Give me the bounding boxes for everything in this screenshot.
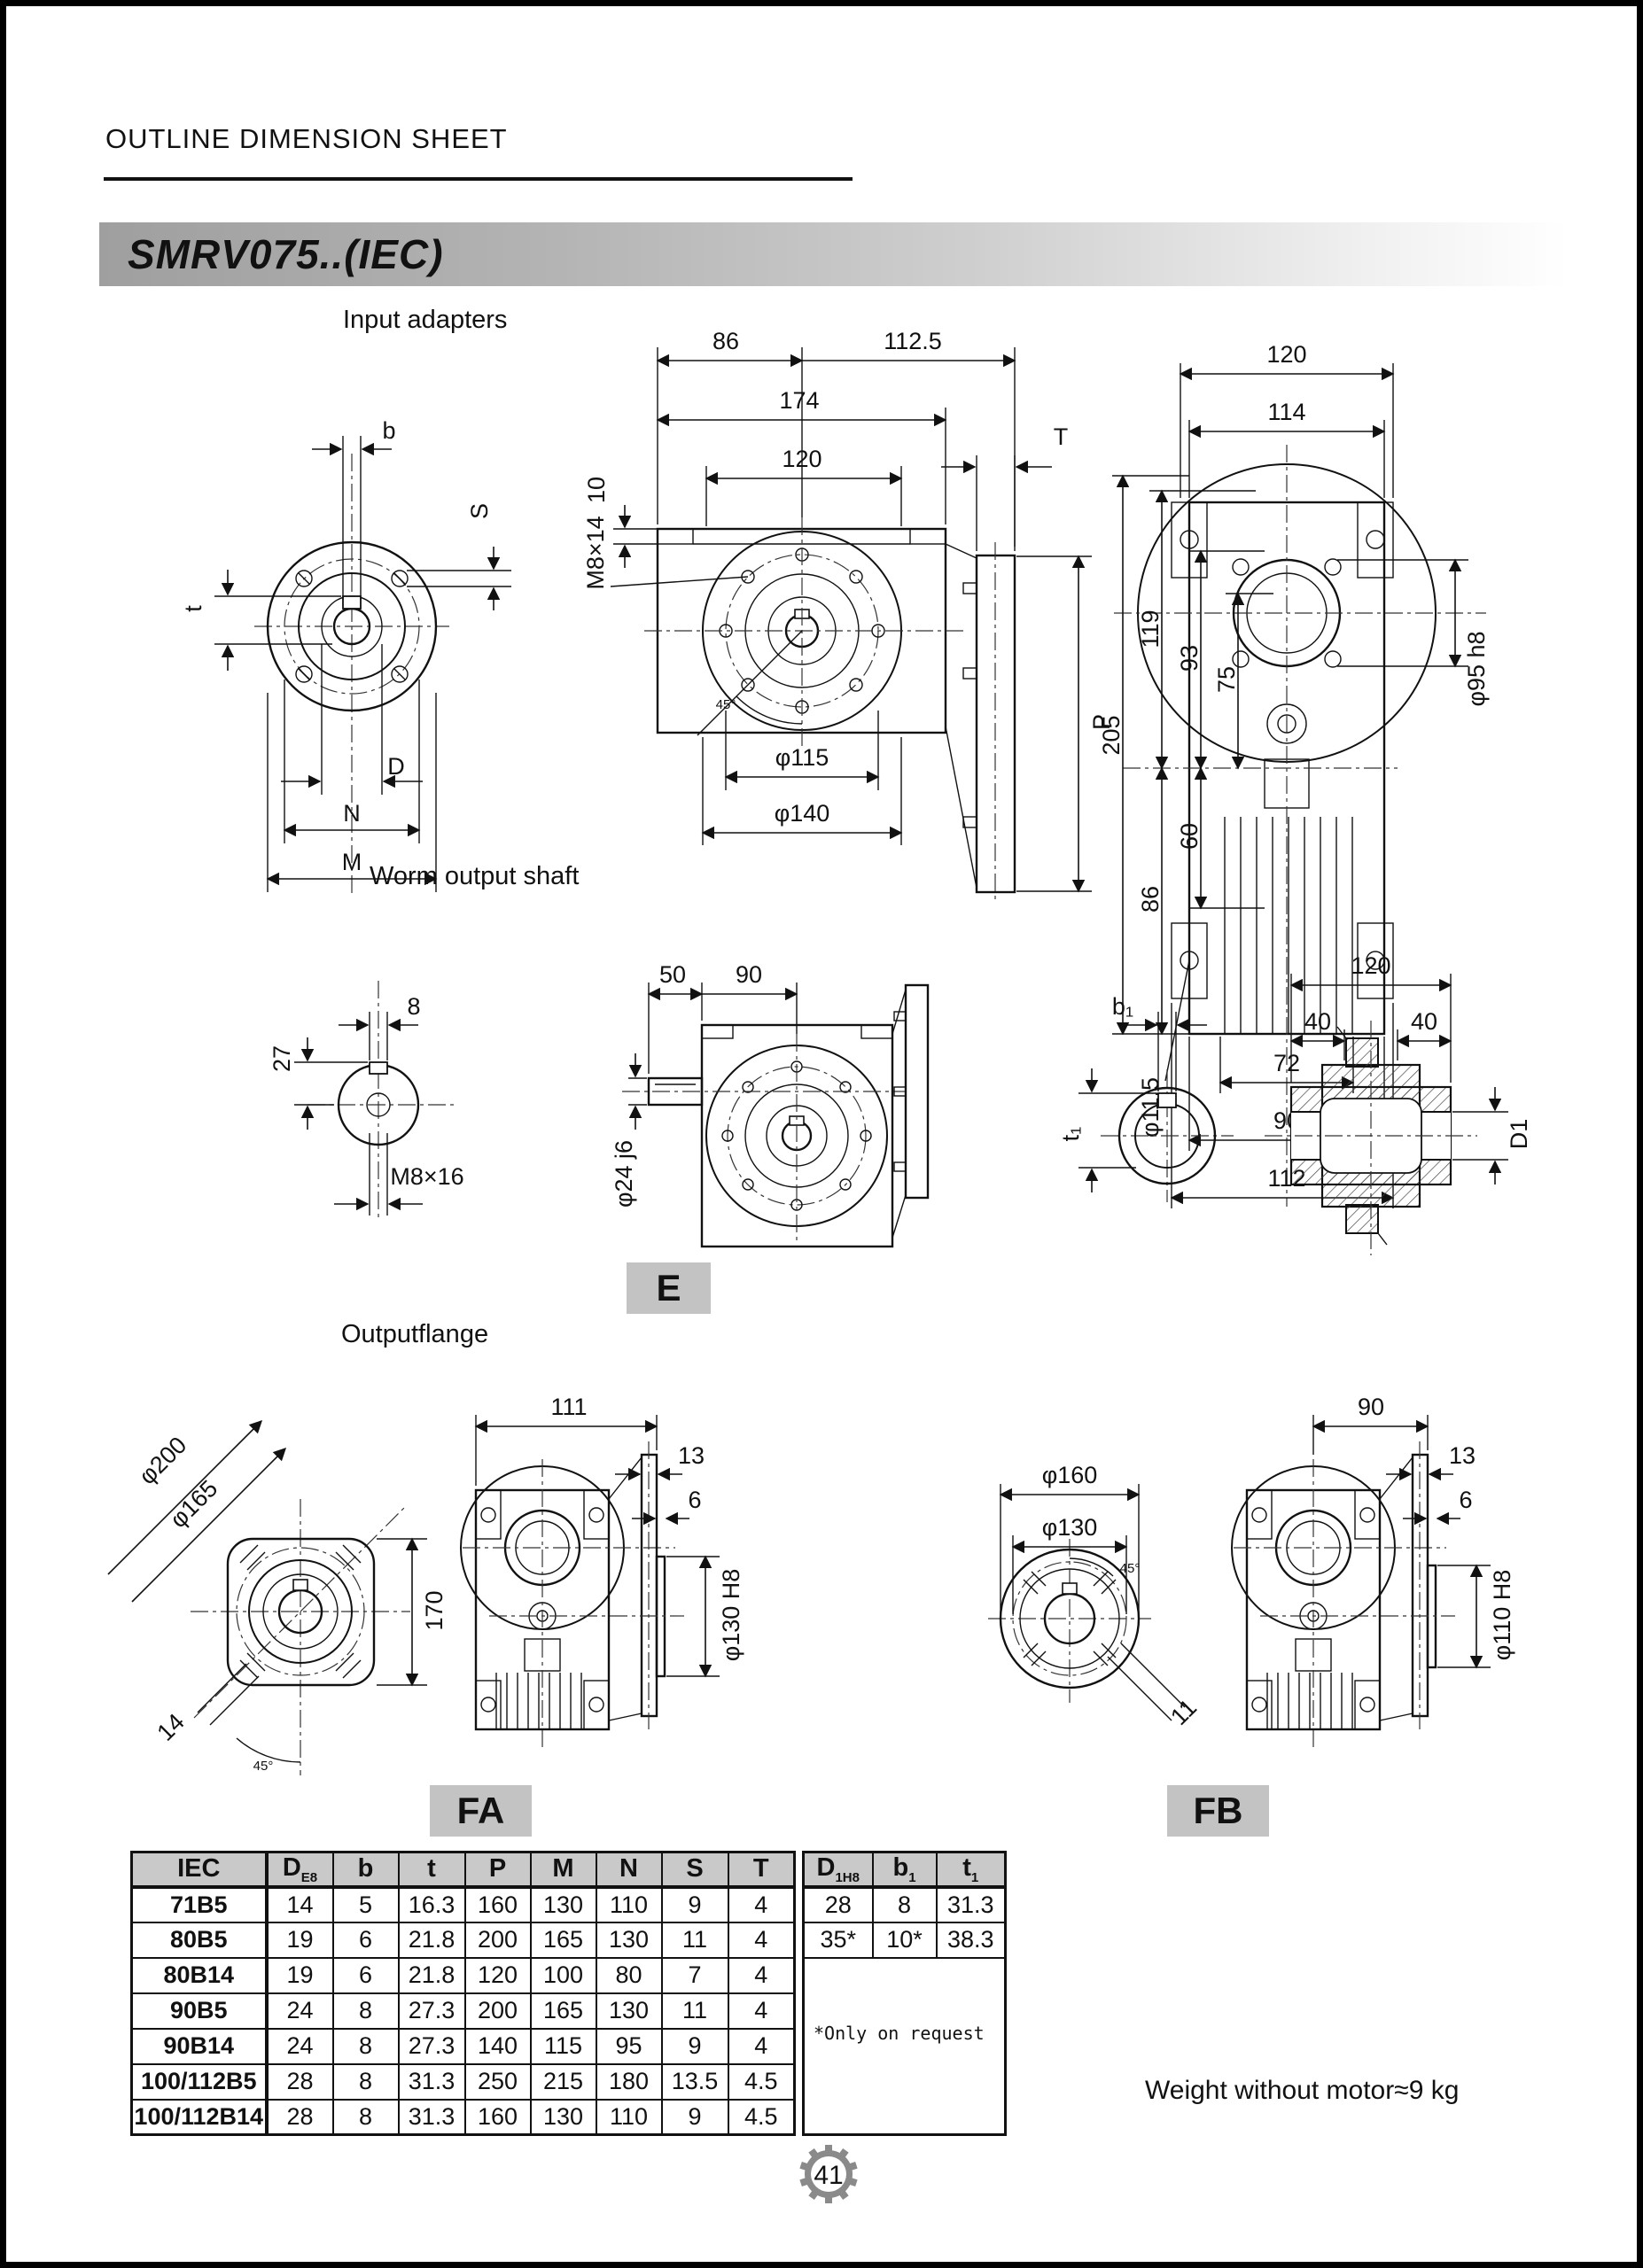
dim-phi24: φ24 j6 <box>611 1053 647 1208</box>
view-label-FB: FB <box>1167 1785 1269 1837</box>
dim-t1: t₁ <box>1057 1068 1156 1192</box>
svg-text:45°: 45° <box>1120 1561 1141 1576</box>
section-title-input-adapters: Input adapters <box>343 306 507 335</box>
svg-text:φ95 h8: φ95 h8 <box>1463 631 1490 706</box>
svg-text:60: 60 <box>1176 823 1203 850</box>
gearbox-geometry <box>1232 1441 1455 1747</box>
view-label-FA: FA <box>430 1785 532 1837</box>
table-row: 90B5 248 27.3200 165130 114 <box>132 1993 795 2029</box>
svg-text:t₁: t₁ <box>1057 1127 1084 1142</box>
col-header-S: S <box>662 1852 728 1887</box>
svg-text:27: 27 <box>269 1045 295 1072</box>
svg-text:86: 86 <box>712 328 739 354</box>
dim-11: 11 <box>1108 1643 1202 1730</box>
svg-text:φ165: φ165 <box>165 1475 222 1533</box>
col-header-iec: IEC <box>132 1852 267 1887</box>
svg-text:6: 6 <box>688 1487 701 1513</box>
svg-text:φ200: φ200 <box>134 1432 191 1489</box>
datasheet-page: OUTLINE DIMENSION SHEET SMRV075..(IEC) I… <box>0 0 1643 2268</box>
input-adapter-front-view-drawing: b S t D N M <box>130 378 573 928</box>
svg-text:t: t <box>180 605 206 612</box>
svg-text:N: N <box>343 800 361 827</box>
dim-45deg: 45° <box>697 631 802 735</box>
title-underline <box>104 177 853 181</box>
dim-120: 120 <box>706 446 901 526</box>
gearbox-geometry <box>644 517 1015 904</box>
svg-text:φ140: φ140 <box>775 800 830 827</box>
dim-90: 90 <box>1313 1394 1428 1455</box>
label-m8x16: M8×16 <box>334 1133 464 1216</box>
table-row: 71B5 145 16.3160 130110 94 <box>132 1887 795 1922</box>
svg-text:112.5: 112.5 <box>884 328 942 354</box>
svg-text:8: 8 <box>407 993 420 1020</box>
hollow-shaft-table: D1H8 b1 t1 28 8 31.3 35* 10* 38.3 *Only … <box>802 1851 1007 2136</box>
svg-text:93: 93 <box>1176 645 1203 672</box>
svg-text:90: 90 <box>1358 1394 1384 1420</box>
svg-text:75: 75 <box>1213 666 1240 693</box>
col-header-N: N <box>596 1852 662 1887</box>
svg-text:111: 111 <box>550 1394 587 1420</box>
page-number: 41 <box>814 2161 843 2190</box>
svg-text:D: D <box>387 753 405 780</box>
col-header-D: DE8 <box>267 1852 333 1887</box>
dim-S: S <box>407 503 511 610</box>
view-label-E: E <box>627 1262 711 1314</box>
dim-14: 14 <box>152 1664 259 1746</box>
svg-text:S: S <box>466 503 493 519</box>
keyed-bore-end-view <box>1101 1069 1234 1202</box>
iec-dimension-table: IEC DE8 b t P M N S T 71B5 145 16.3160 1… <box>130 1851 796 2136</box>
fb-flange-front-drawing: φ160 φ130 45° 11 <box>919 1406 1220 1760</box>
svg-text:b: b <box>382 417 395 444</box>
svg-text:M8×16: M8×16 <box>390 1163 463 1190</box>
model-banner: SMRV075..(IEC) <box>99 222 1569 286</box>
svg-text:90: 90 <box>736 961 762 988</box>
table-row: 100/112B5 288 31.3250 215180 13.54.5 <box>132 2064 795 2100</box>
col-header-T: T <box>728 1852 795 1887</box>
svg-text:φ130: φ130 <box>1042 1514 1098 1541</box>
page-number-badge: 41 <box>798 2144 859 2204</box>
svg-text:φ24 j6: φ24 j6 <box>611 1140 637 1208</box>
table-row: 100/112B14 288 31.3160 130110 94.5 <box>132 2100 795 2135</box>
worm-side-view-drawing: 50 90 φ24 j6 <box>600 901 990 1273</box>
svg-text:φ110 H8: φ110 H8 <box>1489 1570 1515 1661</box>
dim-phi95: φ95 h8 <box>1337 560 1490 707</box>
section-title-output-flange: Outputflange <box>341 1320 488 1349</box>
table-footnote: *Only on request <box>805 1959 1004 2044</box>
dim-phi200-phi165: φ200 φ165 <box>108 1421 285 1602</box>
dim-50-90: 50 90 <box>649 961 797 1074</box>
page-title: OUTLINE DIMENSION SHEET <box>105 123 508 155</box>
col-header-M: M <box>531 1852 596 1887</box>
table-row: 90B14 248 27.3140 11595 94 <box>132 2029 795 2064</box>
svg-text:119: 119 <box>1137 610 1164 648</box>
worm-shaft-end-view-drawing: 8 27 M8×16 <box>245 928 511 1229</box>
dim-45deg: 45° <box>1070 1558 1140 1576</box>
col-header-t: t <box>399 1852 465 1887</box>
gearbox-geometry <box>461 1441 684 1747</box>
svg-text:10: 10 <box>583 477 610 503</box>
dim-b1: b₁ <box>1112 993 1207 1091</box>
dim-13: 13 <box>1386 1442 1476 1474</box>
dim-120-114: 120 114 <box>1180 341 1393 498</box>
svg-text:114: 114 <box>1267 399 1305 425</box>
svg-text:40: 40 <box>1304 1008 1331 1035</box>
fa-flange-front-drawing: φ200 φ165 170 14 45° <box>77 1375 467 1818</box>
svg-text:13: 13 <box>678 1442 705 1469</box>
svg-text:170: 170 <box>421 1590 448 1630</box>
dimension-tables: IEC DE8 b t P M N S T 71B5 145 16.3160 1… <box>130 1851 1007 2136</box>
dim-T: T <box>941 423 1068 551</box>
svg-text:φ115: φ115 <box>775 744 829 771</box>
input-adapter-side-view-drawing: 86 112.5 174 120 10 M8×14 45° <box>573 321 1132 905</box>
svg-text:174: 174 <box>779 387 819 414</box>
col-header-t1: t1 <box>937 1852 1006 1887</box>
dim-13: 13 <box>615 1442 705 1474</box>
svg-text:205: 205 <box>1098 715 1125 755</box>
model-name: SMRV075..(IEC) <box>128 230 444 278</box>
fb-flange-side-drawing: 90 13 6 φ110 H8 <box>1225 1375 1535 1853</box>
svg-text:b₁: b₁ <box>1112 993 1133 1020</box>
svg-text:M8×14: M8×14 <box>582 516 609 589</box>
svg-text:13: 13 <box>1449 1442 1476 1469</box>
svg-text:6: 6 <box>1459 1487 1472 1513</box>
dim-D1: D1 <box>1452 1087 1532 1184</box>
col-header-D1H8: D1H8 <box>804 1852 873 1887</box>
svg-text:120: 120 <box>1351 952 1390 979</box>
table-row: 35* 10* 38.3 <box>804 1922 1006 1958</box>
label-m8x14: M8×14 <box>582 516 748 589</box>
col-header-b: b <box>333 1852 399 1887</box>
svg-text:86: 86 <box>1137 886 1164 913</box>
dim-86-112-5: 86 112.5 <box>658 328 1015 551</box>
fa-flange-side-drawing: 111 13 6 φ130 H8 <box>454 1375 764 1853</box>
hollow-shaft-drawing: b₁ t₁ 120 <box>1025 910 1557 1282</box>
dim-27: 27 <box>269 1037 368 1130</box>
svg-text:D1: D1 <box>1506 1119 1532 1150</box>
gearbox-geometry <box>622 985 928 1247</box>
svg-text:120: 120 <box>1266 341 1306 368</box>
col-header-P: P <box>465 1852 531 1887</box>
svg-text:14: 14 <box>152 1708 189 1745</box>
svg-text:50: 50 <box>659 961 686 988</box>
svg-text:45°: 45° <box>253 1759 274 1774</box>
svg-text:11: 11 <box>1165 1694 1202 1730</box>
svg-text:M: M <box>342 849 362 875</box>
svg-text:40: 40 <box>1411 1008 1437 1035</box>
flange-geometry <box>191 1499 410 1775</box>
dim-45deg: 45° <box>237 1738 300 1774</box>
weight-note: Weight without motor≈9 kg <box>1145 2076 1459 2106</box>
hollow-shaft-section <box>1265 1021 1477 1255</box>
col-header-b1: b1 <box>873 1852 937 1887</box>
table-row: 80B14 196 21.8120 10080 74 <box>132 1958 795 1993</box>
table-note-row: *Only on request <box>804 1958 1006 2135</box>
svg-text:φ160: φ160 <box>1042 1462 1098 1488</box>
svg-text:T: T <box>1054 423 1069 450</box>
table-row: 28 8 31.3 <box>804 1887 1006 1922</box>
svg-text:φ130 H8: φ130 H8 <box>718 1569 744 1662</box>
dim-t: t <box>180 570 341 671</box>
dim-8: 8 <box>339 993 421 1060</box>
table-row: 80B5 196 21.8200 165130 114 <box>132 1922 795 1958</box>
svg-text:120: 120 <box>782 446 821 472</box>
svg-text:45°: 45° <box>716 697 736 712</box>
